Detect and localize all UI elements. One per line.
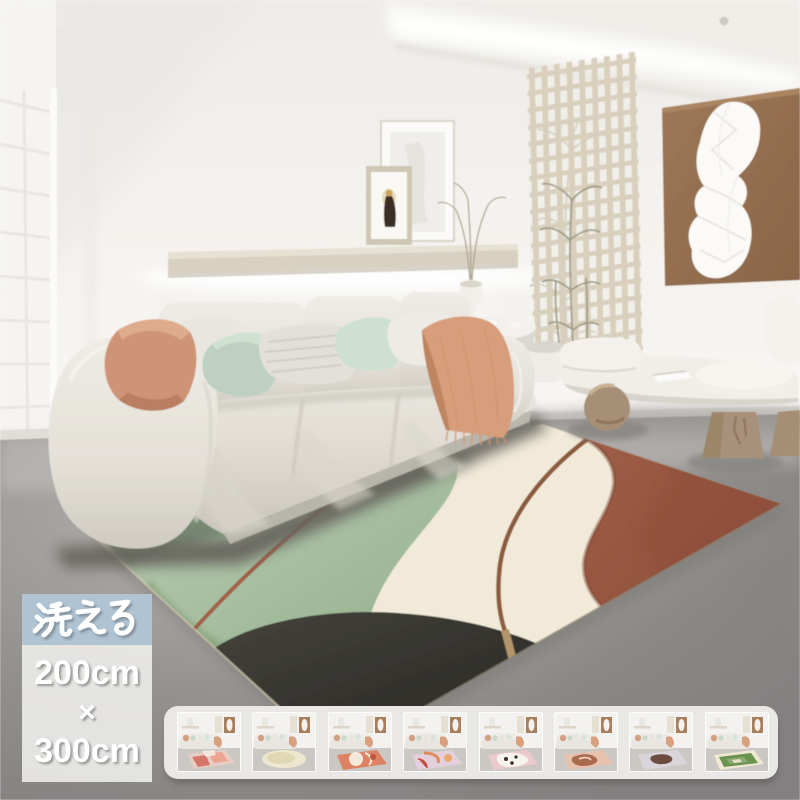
svg-text:300cm: 300cm (34, 732, 140, 770)
svg-text:×: × (78, 696, 96, 729)
svg-text:200cm: 200cm (34, 654, 140, 692)
